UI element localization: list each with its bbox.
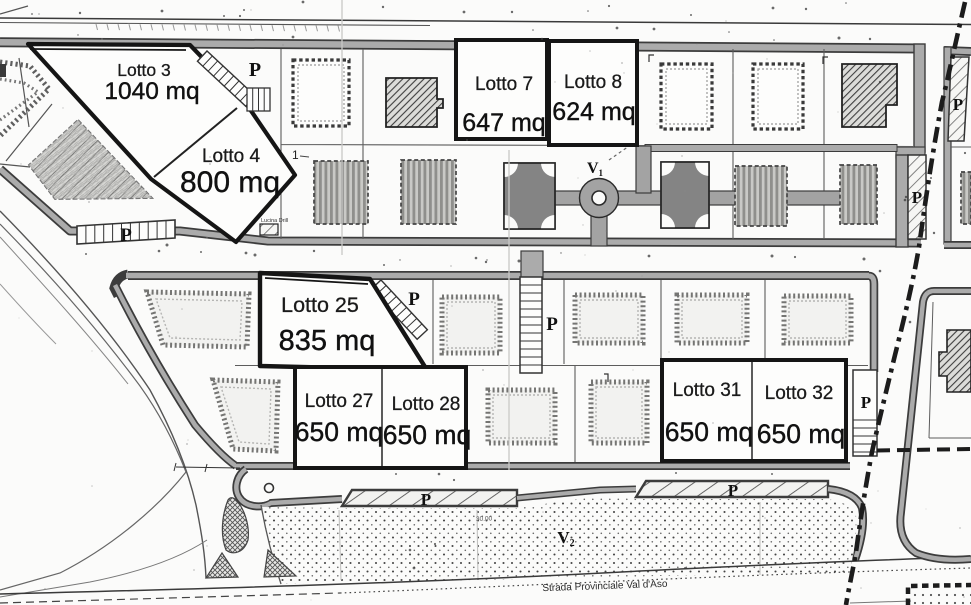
svg-text:800 mq: 800 mq [180, 166, 280, 199]
svg-text:Lucina Drill: Lucina Drill [261, 218, 288, 224]
svg-text:Lotto 25: Lotto 25 [281, 293, 359, 317]
svg-text:Lotto 27: Lotto 27 [305, 391, 374, 412]
svg-text:Lotto 7: Lotto 7 [475, 74, 533, 95]
svg-text:Lotto 8: Lotto 8 [564, 72, 622, 93]
svg-text:Lotto 3: Lotto 3 [117, 60, 171, 80]
svg-text:Lotto 28: Lotto 28 [392, 394, 461, 415]
svg-text:1040 mq: 1040 mq [104, 78, 199, 105]
svg-text:650 mq: 650 mq [665, 417, 753, 447]
svg-text:647 mq: 647 mq [462, 109, 545, 137]
svg-text:30.00: 30.00 [476, 515, 493, 523]
svg-text:1: 1 [292, 148, 299, 162]
svg-text:Lotto 31: Lotto 31 [673, 380, 742, 401]
svg-text:P: P [861, 393, 871, 412]
svg-text:P: P [953, 95, 963, 114]
svg-text:P: P [728, 481, 738, 500]
svg-text:P: P [120, 225, 132, 246]
svg-text:P: P [546, 314, 558, 335]
svg-text:650 mq: 650 mq [295, 417, 383, 447]
svg-text:P: P [421, 490, 431, 509]
svg-text:P: P [408, 289, 420, 310]
svg-text:P: P [249, 59, 261, 81]
svg-text:835 mq: 835 mq [279, 325, 376, 357]
svg-text:650 mq: 650 mq [383, 420, 471, 450]
svg-text:650 mq: 650 mq [757, 419, 845, 449]
svg-text:P: P [912, 188, 922, 207]
svg-text:Lotto 32: Lotto 32 [765, 383, 834, 404]
svg-text:624 mq: 624 mq [552, 98, 635, 126]
